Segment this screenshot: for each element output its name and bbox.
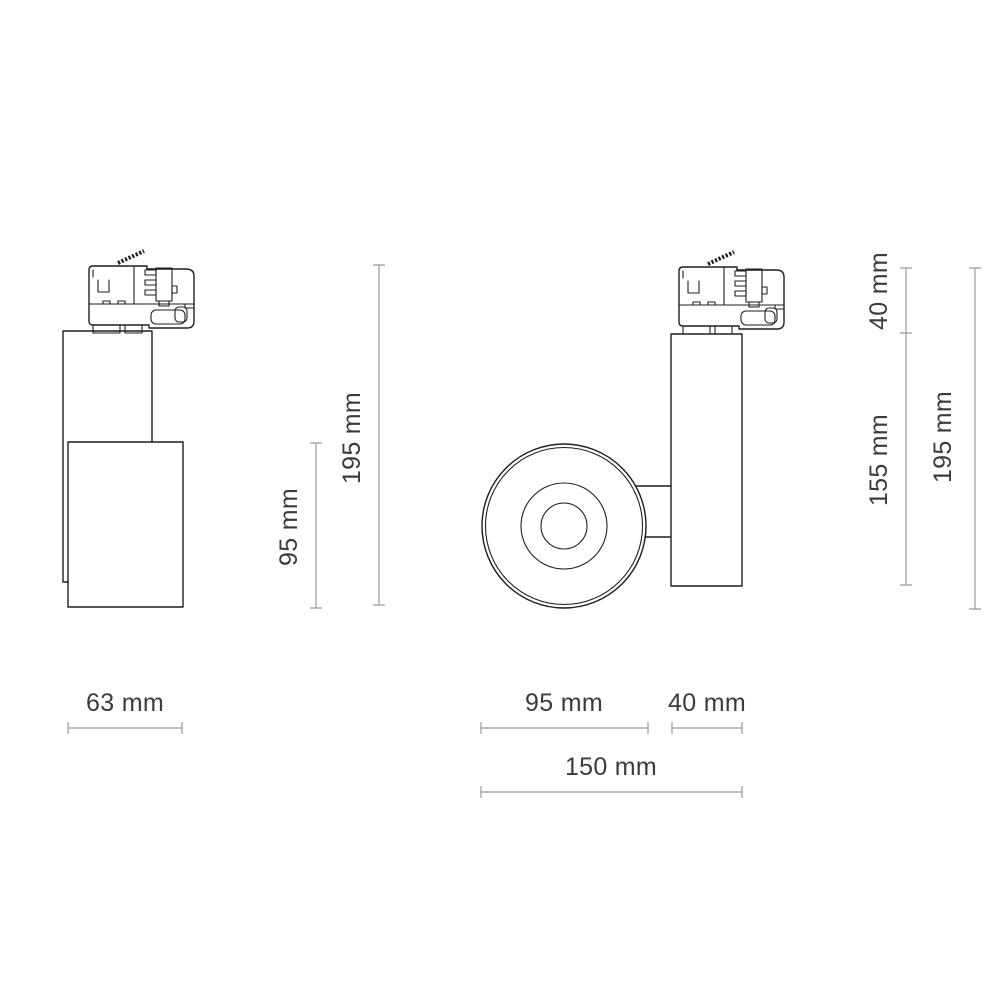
dim-label-total-height-side: 195 mm (338, 392, 366, 484)
dim-line-total-height-side (373, 265, 385, 605)
dim-label-adapter-height: 40 mm (865, 252, 893, 330)
front-head-outer-circle (482, 444, 646, 608)
dim-label-body-height: 155 mm (865, 414, 893, 506)
dim-label-total-height-front: 195 mm (929, 391, 957, 483)
dim-line-adapter-and-body-height (900, 268, 912, 585)
dim-label-body-depth: 40 mm (668, 689, 746, 717)
side-track-adapter (89, 251, 194, 333)
dim-line-total-depth (481, 786, 742, 798)
dim-line-body-depth (672, 722, 742, 734)
dim-label-total-depth: 150 mm (565, 753, 657, 781)
technical-drawing: 95 mm 195 mm 63 mm 40 mm 155 mm (0, 0, 1000, 1000)
dim-line-base-width (68, 722, 182, 734)
side-lamp-head (68, 442, 183, 607)
dim-line-total-height-front (969, 268, 981, 609)
dim-line-head-height (310, 443, 322, 608)
dim-label-base-width: 63 mm (86, 689, 164, 717)
dim-label-head-height: 95 mm (275, 488, 303, 566)
dim-line-head-diameter (481, 722, 648, 734)
front-track-adapter (679, 252, 784, 334)
front-view-drawing (482, 252, 784, 608)
dimension-drawing-canvas: 95 mm 195 mm 63 mm 40 mm 155 mm (0, 0, 1000, 1000)
side-view-drawing (63, 251, 194, 607)
dim-label-head-diameter: 95 mm (525, 689, 603, 717)
front-body (671, 334, 742, 586)
